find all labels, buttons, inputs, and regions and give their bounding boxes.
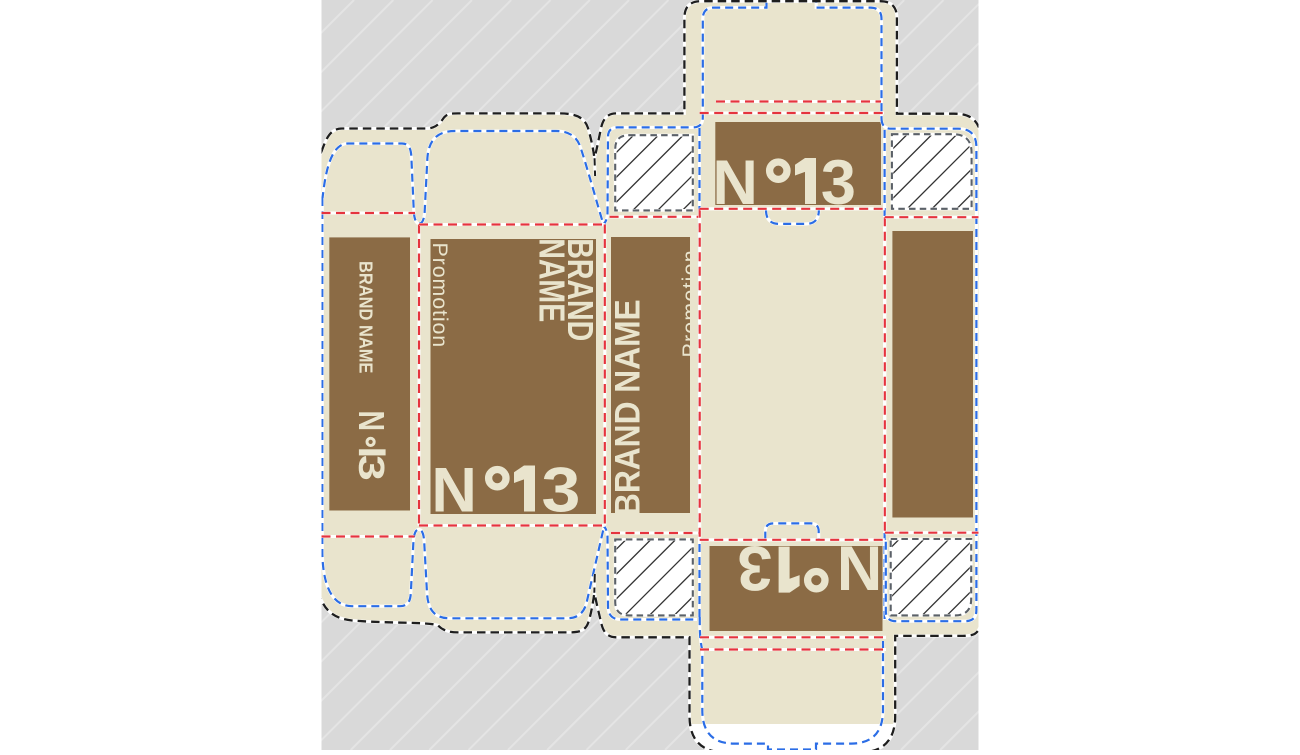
svg-text:N: N	[837, 533, 883, 603]
svg-text:BRAND NAME: BRAND NAME	[355, 261, 376, 374]
svg-text:Promotion: Promotion	[428, 243, 452, 349]
svg-text:3: 3	[351, 455, 392, 481]
svg-text:BRAND NAME: BRAND NAME	[609, 299, 648, 516]
svg-text:3: 3	[737, 533, 772, 603]
svg-text:N: N	[431, 456, 477, 526]
svg-text:N: N	[351, 410, 392, 431]
svg-text:NAME: NAME	[532, 238, 572, 322]
svg-text:3: 3	[542, 456, 581, 526]
